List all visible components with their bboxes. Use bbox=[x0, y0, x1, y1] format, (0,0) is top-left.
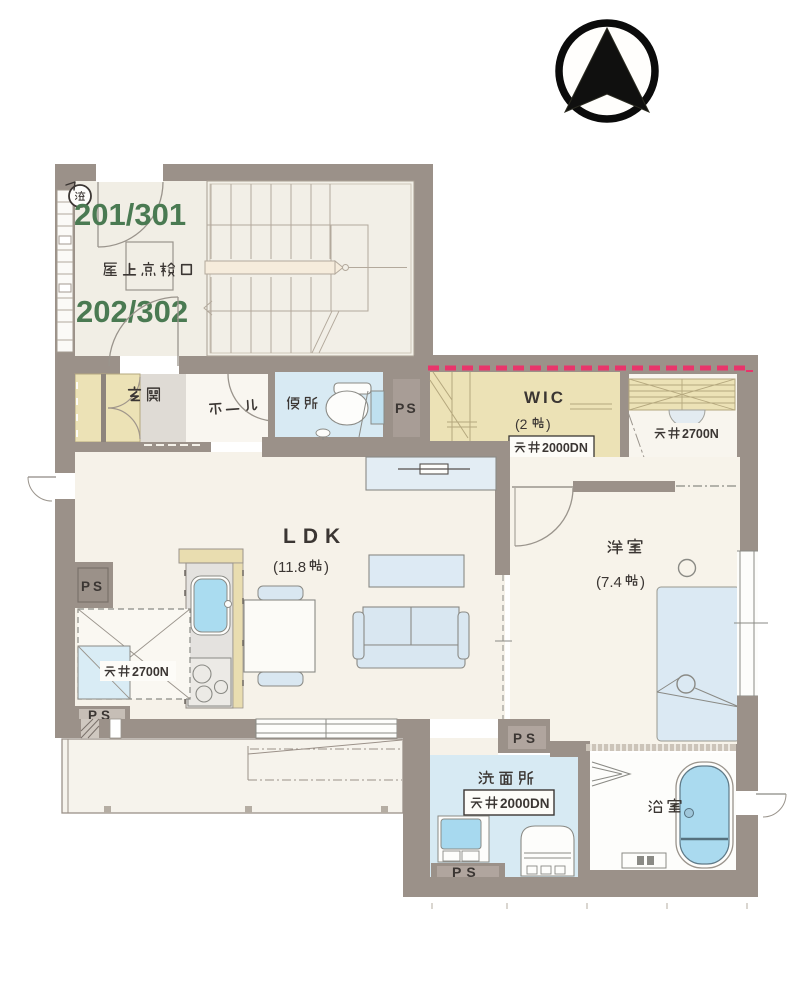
svg-text:): ) bbox=[640, 574, 645, 591]
svg-text:PS: PS bbox=[513, 731, 539, 746]
svg-text:202/302: 202/302 bbox=[76, 294, 188, 329]
svg-text:PS: PS bbox=[395, 400, 418, 416]
svg-text:2700N: 2700N bbox=[682, 427, 719, 441]
svg-text:): ) bbox=[546, 416, 551, 432]
svg-text:(11.8: (11.8 bbox=[273, 559, 306, 576]
svg-text:(2: (2 bbox=[515, 416, 528, 432]
svg-text:PS: PS bbox=[81, 579, 105, 594]
svg-text:2000DN: 2000DN bbox=[500, 796, 550, 811]
svg-text:WIC: WIC bbox=[524, 388, 566, 407]
svg-text:): ) bbox=[324, 559, 329, 576]
svg-text:2700N: 2700N bbox=[132, 665, 169, 679]
svg-text:LDK: LDK bbox=[283, 525, 347, 548]
svg-text:2000DN: 2000DN bbox=[542, 441, 588, 455]
svg-text:(7.4: (7.4 bbox=[596, 574, 622, 591]
svg-text:201/301: 201/301 bbox=[74, 197, 186, 232]
